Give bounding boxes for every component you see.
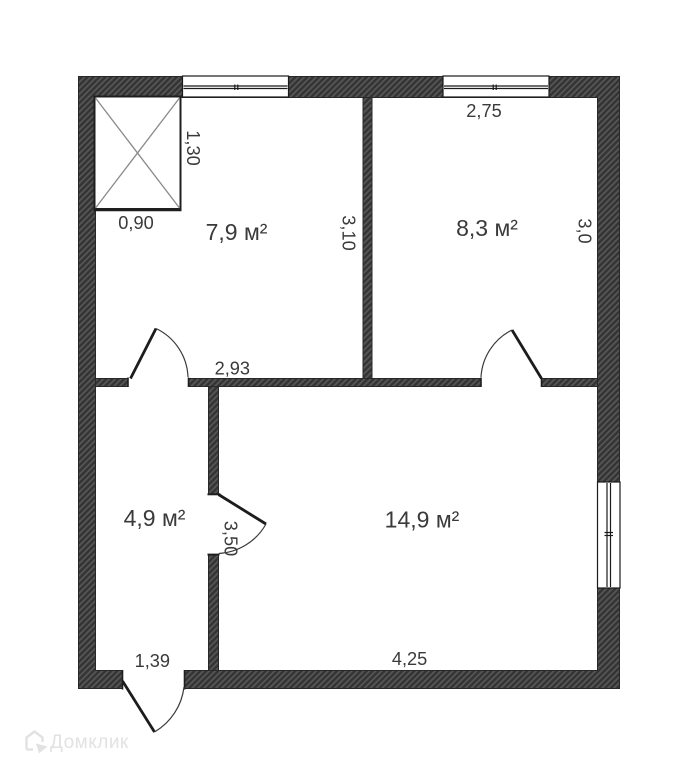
svg-text:2,93: 2,93 — [215, 359, 250, 379]
svg-text:1,30: 1,30 — [183, 130, 203, 165]
svg-text:8,3 м²: 8,3 м² — [456, 215, 518, 241]
svg-text:4,25: 4,25 — [392, 649, 427, 669]
svg-text:14,9 м²: 14,9 м² — [385, 507, 460, 533]
svg-text:7,9 м²: 7,9 м² — [206, 219, 268, 245]
svg-text:1,39: 1,39 — [135, 651, 170, 671]
svg-text:3,0: 3,0 — [574, 218, 594, 243]
svg-text:4,9 м²: 4,9 м² — [124, 505, 186, 531]
svg-text:3,10: 3,10 — [339, 215, 359, 250]
svg-text:3,50: 3,50 — [220, 521, 240, 556]
svg-text:0,90: 0,90 — [118, 213, 153, 233]
svg-text:Домклик: Домклик — [50, 732, 129, 753]
svg-text:2,75: 2,75 — [466, 101, 501, 121]
